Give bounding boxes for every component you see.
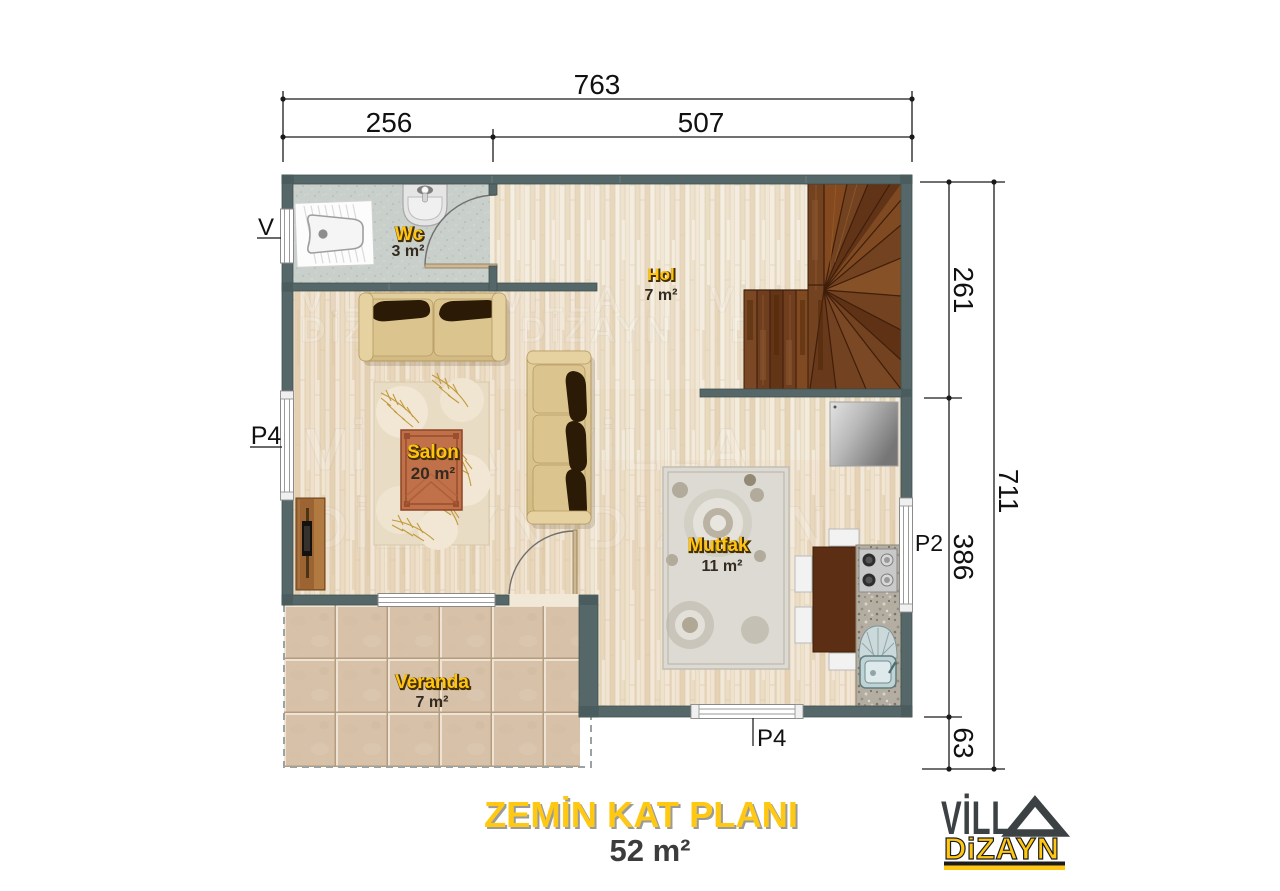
svg-text:763: 763 [574,69,621,100]
svg-text:Mutfak: Mutfak [687,535,749,556]
svg-text:Veranda: Veranda [395,672,469,693]
svg-text:P2: P2 [915,530,943,556]
svg-text:261: 261 [948,267,979,314]
svg-text:711: 711 [993,469,1024,514]
svg-text:20 m²: 20 m² [411,464,456,483]
svg-text:63: 63 [948,727,979,758]
svg-text:52 m²: 52 m² [610,833,691,868]
svg-text:Wc: Wc [395,224,424,245]
svg-text:DiZAYN: DiZAYN [944,831,1060,866]
svg-text:Hol: Hol [647,265,674,284]
svg-text:V: V [258,214,274,241]
svg-text:P4: P4 [251,422,282,450]
svg-text:386: 386 [948,534,979,581]
svg-text:256: 256 [366,107,413,138]
svg-text:11 m²: 11 m² [702,558,743,575]
svg-text:7 m²: 7 m² [416,694,449,711]
svg-text:DİZAYN: DİZAYN [520,309,675,350]
svg-text:3 m²: 3 m² [392,243,425,260]
svg-text:P4: P4 [757,725,786,752]
svg-text:Salon: Salon [407,442,459,463]
svg-text:ZEMİN KAT PLANI: ZEMİN KAT PLANI [484,794,798,835]
svg-text:507: 507 [678,107,725,138]
svg-text:7 m²: 7 m² [645,287,678,304]
